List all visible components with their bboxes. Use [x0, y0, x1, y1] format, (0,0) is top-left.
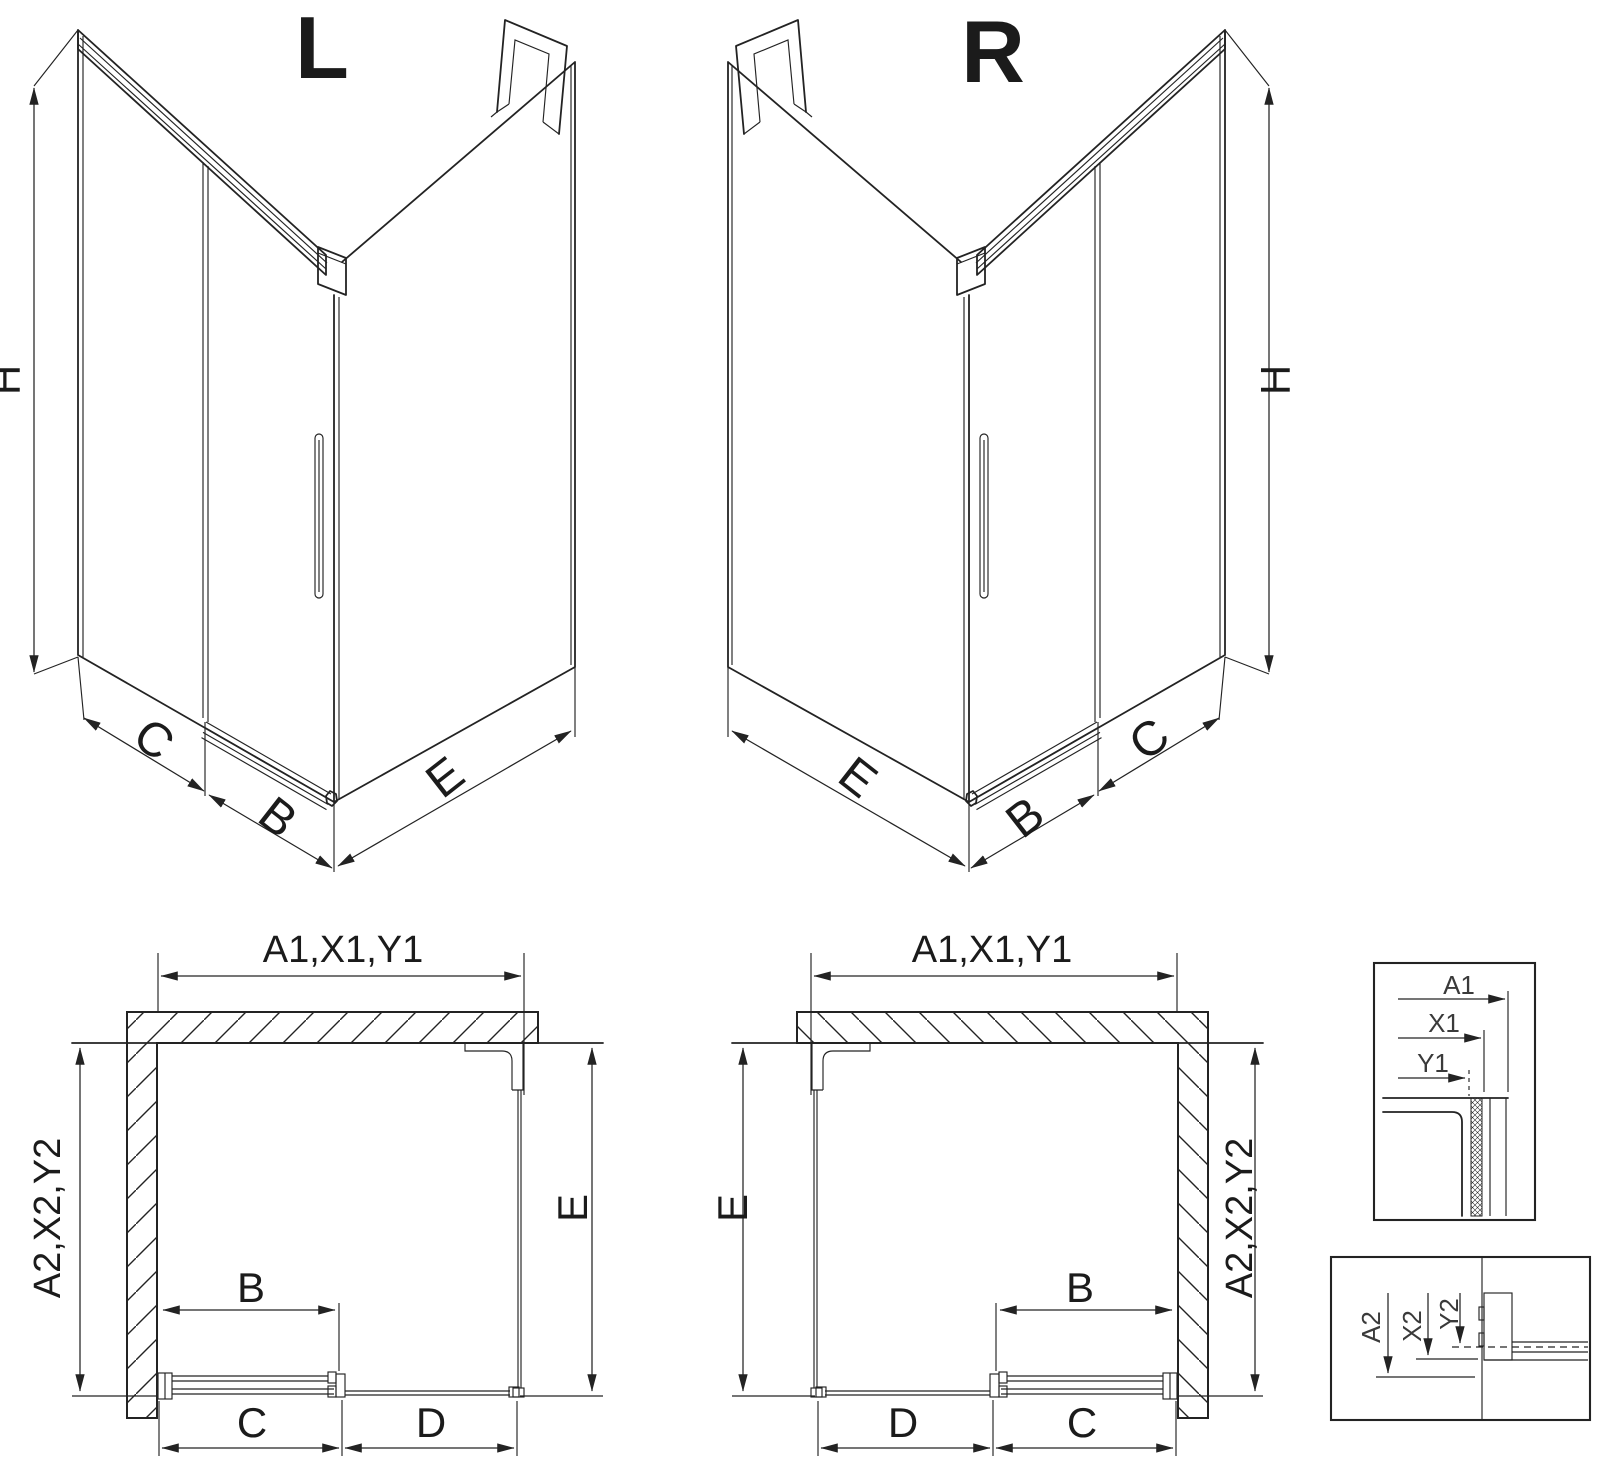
dim-label-c-right: C — [1119, 708, 1179, 771]
plan-right-dim-a1: A1,X1,Y1 — [912, 929, 1073, 971]
dim-label-h-right: H — [1252, 365, 1299, 395]
view-title-right: R — [961, 2, 1025, 101]
plan-view-right: A1,X1,Y1 E A2,X2,Y2 B C D — [709, 929, 1263, 1456]
technical-drawing: L H C B E R H E B C A1,X1,Y1 A2,X2,Y2 E … — [0, 0, 1600, 1458]
iso-view-left: L H C B E — [0, 0, 575, 872]
detail-dim-a1: A1 — [1443, 970, 1475, 1000]
dim-label-e-left: E — [417, 747, 475, 808]
detail-top-frame — [1374, 963, 1535, 1220]
plan-left-dim-b: B — [237, 1264, 265, 1311]
detail-dim-a2: A2 — [1356, 1311, 1386, 1343]
iso-view-right: R H E B C — [728, 2, 1299, 872]
detail-dim-x1: X1 — [1428, 1008, 1460, 1038]
dim-label-c-left: C — [124, 708, 184, 771]
door-profile-section — [1484, 1293, 1512, 1360]
plan-view-left: A1,X1,Y1 A2,X2,Y2 E B C D — [27, 929, 603, 1456]
plan-left-dim-d: D — [416, 1399, 446, 1446]
plan-right-dim-d: D — [888, 1399, 918, 1446]
drawing-page: L H C B E R H E B C A1,X1,Y1 A2,X2,Y2 E … — [0, 0, 1600, 1458]
detail-dim-x2: X2 — [1397, 1310, 1427, 1342]
detail-view-top: A1 X1 Y1 — [1374, 963, 1535, 1220]
view-title-left: L — [295, 0, 349, 97]
iso-right-geometry — [728, 20, 1269, 872]
dim-label-b-right: B — [997, 787, 1055, 848]
glass-section — [1471, 1098, 1482, 1216]
detail-dim-y1: Y1 — [1417, 1048, 1449, 1078]
plan-left-dim-a2: A2,X2,Y2 — [27, 1138, 69, 1299]
dim-label-b-left: B — [249, 787, 307, 848]
plan-left-geometry — [72, 953, 603, 1456]
plan-right-dim-e: E — [709, 1194, 756, 1222]
plan-right-dim-a2: A2,X2,Y2 — [1219, 1138, 1261, 1299]
plan-right-geometry — [732, 953, 1263, 1456]
plan-left-dim-a1: A1,X1,Y1 — [263, 929, 424, 971]
plan-left-dim-e: E — [549, 1194, 596, 1222]
plan-right-dim-c: C — [1067, 1399, 1097, 1446]
plan-right-dim-b: B — [1066, 1264, 1094, 1311]
iso-left-geometry — [34, 20, 575, 872]
plan-left-dim-c: C — [237, 1399, 267, 1446]
detail-view-bottom: A2 X2 Y2 — [1331, 1257, 1590, 1420]
dim-label-e-right: E — [829, 747, 887, 808]
dim-label-h-left: H — [0, 365, 29, 395]
